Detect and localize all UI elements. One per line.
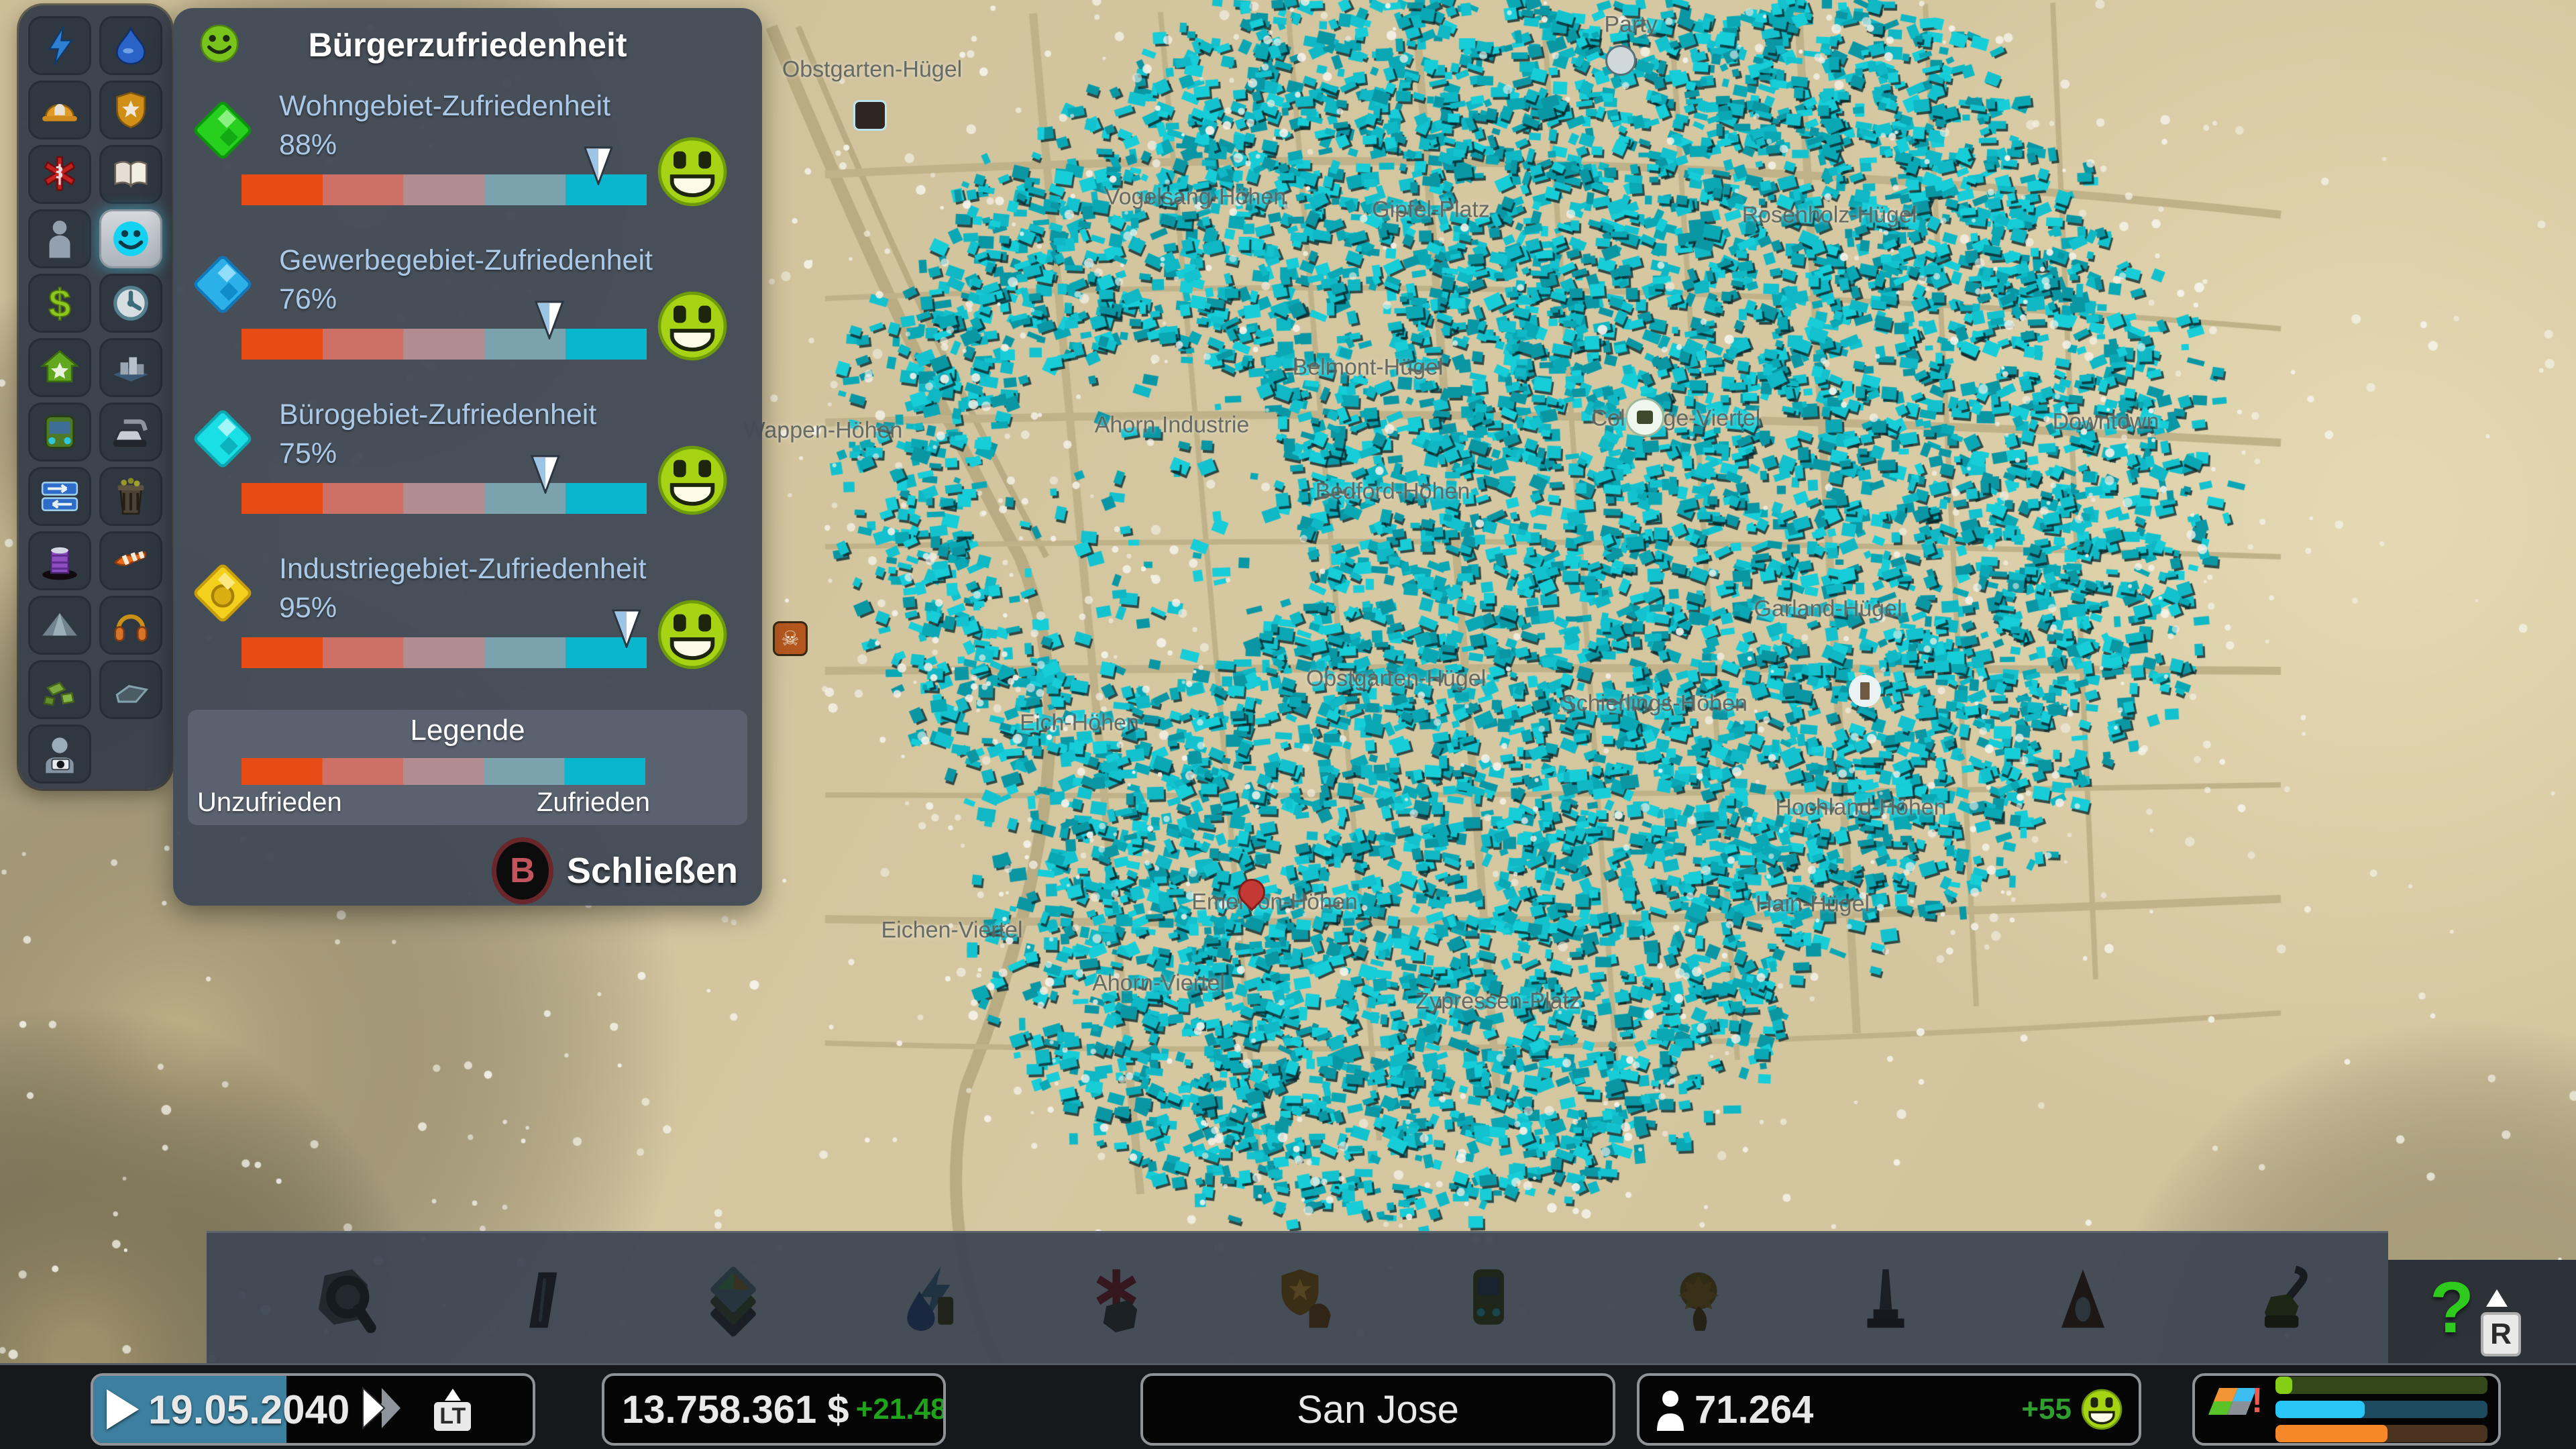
satisfaction-label: Wohngebiet-Zufriedenheit xyxy=(279,90,610,123)
industrial-demand-bar xyxy=(2275,1425,2487,1442)
fire-safety-icon xyxy=(39,89,80,131)
photo-mode-icon xyxy=(39,733,80,775)
infoview-sidebar: $ xyxy=(19,5,172,789)
zone-demand-display[interactable]: ! xyxy=(2192,1373,2501,1446)
transit-bus-icon xyxy=(39,411,80,453)
land-value-icon xyxy=(39,347,80,388)
sidebar-item-land-plot[interactable] xyxy=(99,660,162,719)
satisfaction-label: Gewerbegebiet-Zufriedenheit xyxy=(279,244,653,277)
sidebar-item-routes[interactable] xyxy=(28,467,91,526)
happy-grin-icon xyxy=(655,134,730,209)
zone-demand-icon: ! xyxy=(2206,1383,2265,1436)
sidebar-item-electricity[interactable] xyxy=(28,16,91,75)
sidebar-item-traffic[interactable] xyxy=(99,402,162,462)
sidebar-item-police[interactable] xyxy=(99,80,162,140)
residential-demand-bar xyxy=(2275,1377,2487,1394)
citizen-satisfaction-panel: Bürgerzufriedenheit Wohngebiet-Zufrieden… xyxy=(173,8,762,906)
satisfaction-row-residential: Wohngebiet-Zufriedenheit 88% xyxy=(173,87,762,233)
play-icon[interactable] xyxy=(107,1389,139,1430)
sidebar-item-time-clock[interactable] xyxy=(99,274,162,333)
satisfaction-label: Bürogebiet-Zufriedenheit xyxy=(279,398,596,431)
water-icon xyxy=(110,25,152,66)
happy-grin-icon xyxy=(655,288,730,364)
legend-gradient-bar xyxy=(241,758,645,785)
sidebar-item-city-blocks[interactable] xyxy=(99,338,162,397)
sidebar-item-ground-pollution[interactable] xyxy=(28,531,91,590)
sidebar-item-natural-resources[interactable] xyxy=(28,660,91,719)
legend-unsatisfied-label: Unzufrieden xyxy=(197,788,342,818)
money-delta: +21.489 $ xyxy=(856,1393,946,1426)
time-clock-icon xyxy=(110,282,152,324)
residential-zone-icon xyxy=(188,95,258,165)
commercial-zone-icon xyxy=(188,250,258,319)
office-zone-icon xyxy=(188,404,258,474)
sidebar-item-land-value[interactable] xyxy=(28,338,91,397)
sidebar-item-education[interactable] xyxy=(99,145,162,204)
fast-forward-icon[interactable] xyxy=(359,1387,421,1433)
money-display[interactable]: 13.758.361 $ +21.489 $ xyxy=(602,1373,946,1446)
satisfaction-marker-icon xyxy=(584,146,613,185)
lt-key-label: LT xyxy=(434,1402,471,1431)
electricity-icon xyxy=(39,25,80,66)
natural-resources-icon xyxy=(39,669,80,710)
person-icon xyxy=(1654,1388,1686,1431)
current-date: 19.05.2040 xyxy=(148,1387,350,1433)
commercial-demand-bar xyxy=(2275,1401,2487,1418)
legend-satisfied-label: Zufrieden xyxy=(537,788,650,818)
toolbar-item-zoning[interactable] xyxy=(690,1257,776,1343)
population-count: 71.264 xyxy=(1695,1387,1813,1432)
satisfaction-gradient-bar xyxy=(241,174,647,205)
noise-pollution-icon xyxy=(110,604,152,646)
roads-icon xyxy=(508,1263,582,1337)
sidebar-item-wind[interactable] xyxy=(99,531,162,590)
money-balance: 13.758.361 $ xyxy=(622,1387,849,1432)
svg-text:$: $ xyxy=(48,282,70,324)
help-section: ? R xyxy=(2388,1260,2576,1364)
sidebar-item-economy[interactable]: $ xyxy=(28,274,91,333)
healthcare-icon xyxy=(39,154,80,195)
satisfaction-value: 88% xyxy=(279,129,337,162)
cursor-triangle-icon xyxy=(2486,1289,2508,1307)
sidebar-item-happiness[interactable] xyxy=(99,209,162,268)
key-hint-r: R xyxy=(2481,1312,2521,1356)
svg-text:!: ! xyxy=(2251,1383,2263,1420)
gamepad-b-button-icon: B xyxy=(492,837,553,904)
help-question-mark-icon[interactable]: ? xyxy=(2430,1265,2474,1349)
inspect-magnifier-icon xyxy=(309,1263,383,1337)
satisfaction-gradient-bar xyxy=(241,483,647,514)
satisfaction-value: 95% xyxy=(279,592,337,625)
education-icon xyxy=(110,154,152,195)
city-name: San Jose xyxy=(1297,1387,1459,1432)
close-label: Schließen xyxy=(567,850,738,892)
zoning-icon xyxy=(696,1263,770,1337)
toolbar-item-safety[interactable] xyxy=(1263,1257,1349,1343)
gamepad-lt-hint: LT xyxy=(434,1389,471,1431)
satisfaction-gradient-bar xyxy=(241,329,647,360)
toolbar-item-utilities[interactable] xyxy=(889,1257,975,1343)
legend-title: Legende xyxy=(188,714,747,747)
citizens-icon xyxy=(39,218,80,260)
satisfaction-marker-icon xyxy=(531,455,560,494)
sidebar-item-transit-bus[interactable] xyxy=(28,402,91,462)
transport-icon xyxy=(1452,1263,1525,1337)
panel-header: Bürgerzufriedenheit xyxy=(173,8,762,78)
monuments-icon xyxy=(1849,1263,1923,1337)
satisfaction-value: 75% xyxy=(279,437,337,470)
toolbar-item-inspect-magnifier[interactable] xyxy=(303,1257,389,1343)
toolbar-item-landmarks[interactable] xyxy=(2040,1257,2126,1343)
water-pyramid-icon xyxy=(39,604,80,646)
status-bar: 19.05.2040 LT 13.758. xyxy=(0,1363,2576,1449)
demand-bars xyxy=(2275,1377,2487,1442)
satisfaction-row-industrial: Industriegebiet-Zufriedenheit 95% xyxy=(173,550,762,696)
toolbar-item-parks[interactable] xyxy=(1656,1257,1741,1343)
industrial-zone-icon xyxy=(188,558,258,628)
routes-icon xyxy=(39,476,80,517)
satisfaction-row-office: Bürogebiet-Zufriedenheit 75% xyxy=(173,396,762,542)
happiness-icon xyxy=(110,218,152,260)
police-icon xyxy=(110,89,152,131)
economy-icon: $ xyxy=(39,282,80,324)
sidebar-item-water[interactable] xyxy=(99,16,162,75)
happy-grin-icon xyxy=(655,597,730,672)
sidebar-item-fire-safety[interactable] xyxy=(28,80,91,140)
landmarks-icon xyxy=(2046,1263,2120,1337)
trigger-arrow-icon xyxy=(445,1389,461,1401)
happy-grin-icon xyxy=(655,443,730,518)
population-happy-icon xyxy=(2080,1387,2124,1432)
population-delta: +55 xyxy=(2021,1393,2072,1426)
safety-icon xyxy=(1269,1263,1343,1337)
services-icon xyxy=(1079,1263,1152,1337)
city-name-display[interactable]: San Jose xyxy=(1140,1373,1615,1446)
sidebar-item-healthcare[interactable] xyxy=(28,145,91,204)
terraforming-icon xyxy=(2249,1263,2323,1337)
land-plot-icon xyxy=(110,669,152,710)
main-toolbar xyxy=(207,1231,2388,1366)
parks-icon xyxy=(1662,1263,1735,1337)
satisfaction-label: Industriegebiet-Zufriedenheit xyxy=(279,553,646,586)
close-button[interactable]: B Schließen xyxy=(492,837,738,904)
wind-icon xyxy=(110,540,152,582)
utilities-icon xyxy=(895,1263,969,1337)
toolbar-item-roads[interactable] xyxy=(502,1257,588,1343)
toolbar-item-transport[interactable] xyxy=(1446,1257,1532,1343)
sidebar-item-noise-pollution[interactable] xyxy=(99,596,162,655)
date-time-control[interactable]: 19.05.2040 LT xyxy=(91,1373,535,1446)
legend-box: Legende Unzufrieden Zufrieden xyxy=(188,710,747,825)
sidebar-item-photo-mode[interactable] xyxy=(28,724,91,784)
toolbar-item-terraforming[interactable] xyxy=(2243,1257,2329,1343)
garbage-icon xyxy=(110,476,152,517)
sidebar-item-garbage[interactable] xyxy=(99,467,162,526)
sidebar-item-citizens[interactable] xyxy=(28,209,91,268)
satisfaction-marker-icon xyxy=(535,301,564,339)
city-blocks-icon xyxy=(110,347,152,388)
sidebar-item-water-pyramid[interactable] xyxy=(28,596,91,655)
satisfaction-row-commercial: Gewerbegebiet-Zufriedenheit 76% xyxy=(173,241,762,388)
satisfaction-value: 76% xyxy=(279,283,337,316)
satisfaction-marker-icon xyxy=(612,609,641,648)
game-screen: Obstgarten-HügelPartyVogelsang-HöhenGipf… xyxy=(0,0,2576,1449)
toolbar-item-services[interactable] xyxy=(1073,1257,1159,1343)
toolbar-item-monuments[interactable] xyxy=(1843,1257,1929,1343)
satisfaction-gradient-bar xyxy=(241,637,647,668)
traffic-icon xyxy=(110,411,152,453)
panel-title: Bürgerzufriedenheit xyxy=(173,25,762,64)
ground-pollution-icon xyxy=(39,540,80,582)
population-display[interactable]: 71.264 +55 xyxy=(1637,1373,2141,1446)
